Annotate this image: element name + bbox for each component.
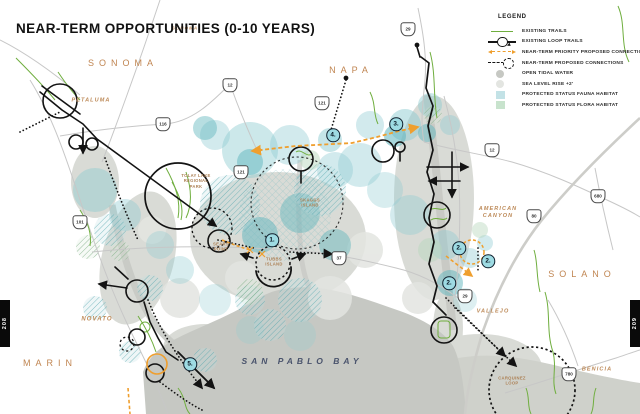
legend-item: PROTECTED STATUS FAUNA HABITAT [488,90,640,101]
legend-item-label: SEA LEVEL RISE +2' [522,82,573,87]
legend-item: NEAR-TERM PROPOSED CONNECTIONS [488,58,640,69]
legend-item-label: EXISTING TRAILS [522,29,567,34]
legend: LEGEND EXISTING TRAILS EXISTING LOOP TRA… [488,14,640,111]
legend-item-label: PROTECTED STATUS FLORA HABITAT [522,103,618,108]
legend-items: EXISTING TRAILS EXISTING LOOP TRAILS NEA… [488,26,640,111]
page-number-right: 209 [632,317,638,329]
legend-swatch [488,47,518,57]
legend-item: OPEN TIDAL WATER [488,68,640,79]
legend-item-label: OPEN TIDAL WATER [522,71,573,76]
page-tab-left: 208 [0,300,10,347]
legend-item-label: NEAR-TERM PROPOSED CONNECTIONS [522,61,624,66]
legend-item: EXISTING TRAILS [488,26,640,37]
page-tab-right: 209 [630,300,640,347]
legend-item-label: EXISTING LOOP TRAILS [522,39,583,44]
legend-swatch [488,26,518,36]
legend-swatch [488,90,518,100]
legend-swatch [488,100,518,110]
legend-item: PROTECTED STATUS FLORA HABITAT [488,100,640,111]
legend-item: EXISTING LOOP TRAILS [488,37,640,48]
legend-title: LEGEND [498,14,640,20]
legend-swatch [488,37,518,47]
legend-swatch [488,69,518,79]
page-number-left: 208 [2,317,8,329]
legend-item: NEAR-TERM PRIORITY PROPOSED CONNECTIONS [488,47,640,58]
page-title: NEAR-TERM OPPORTUNITIES (0-10 YEARS) [16,21,315,36]
legend-item-label: PROTECTED STATUS FAUNA HABITAT [522,92,618,97]
legend-swatch [488,58,518,68]
legend-swatch [488,79,518,89]
legend-item: SEA LEVEL RISE +2' [488,79,640,90]
legend-item-label: NEAR-TERM PRIORITY PROPOSED CONNECTIONS [522,50,640,55]
map-page: NEAR-TERM OPPORTUNITIES (0-10 YEARS) LEG… [0,0,640,414]
